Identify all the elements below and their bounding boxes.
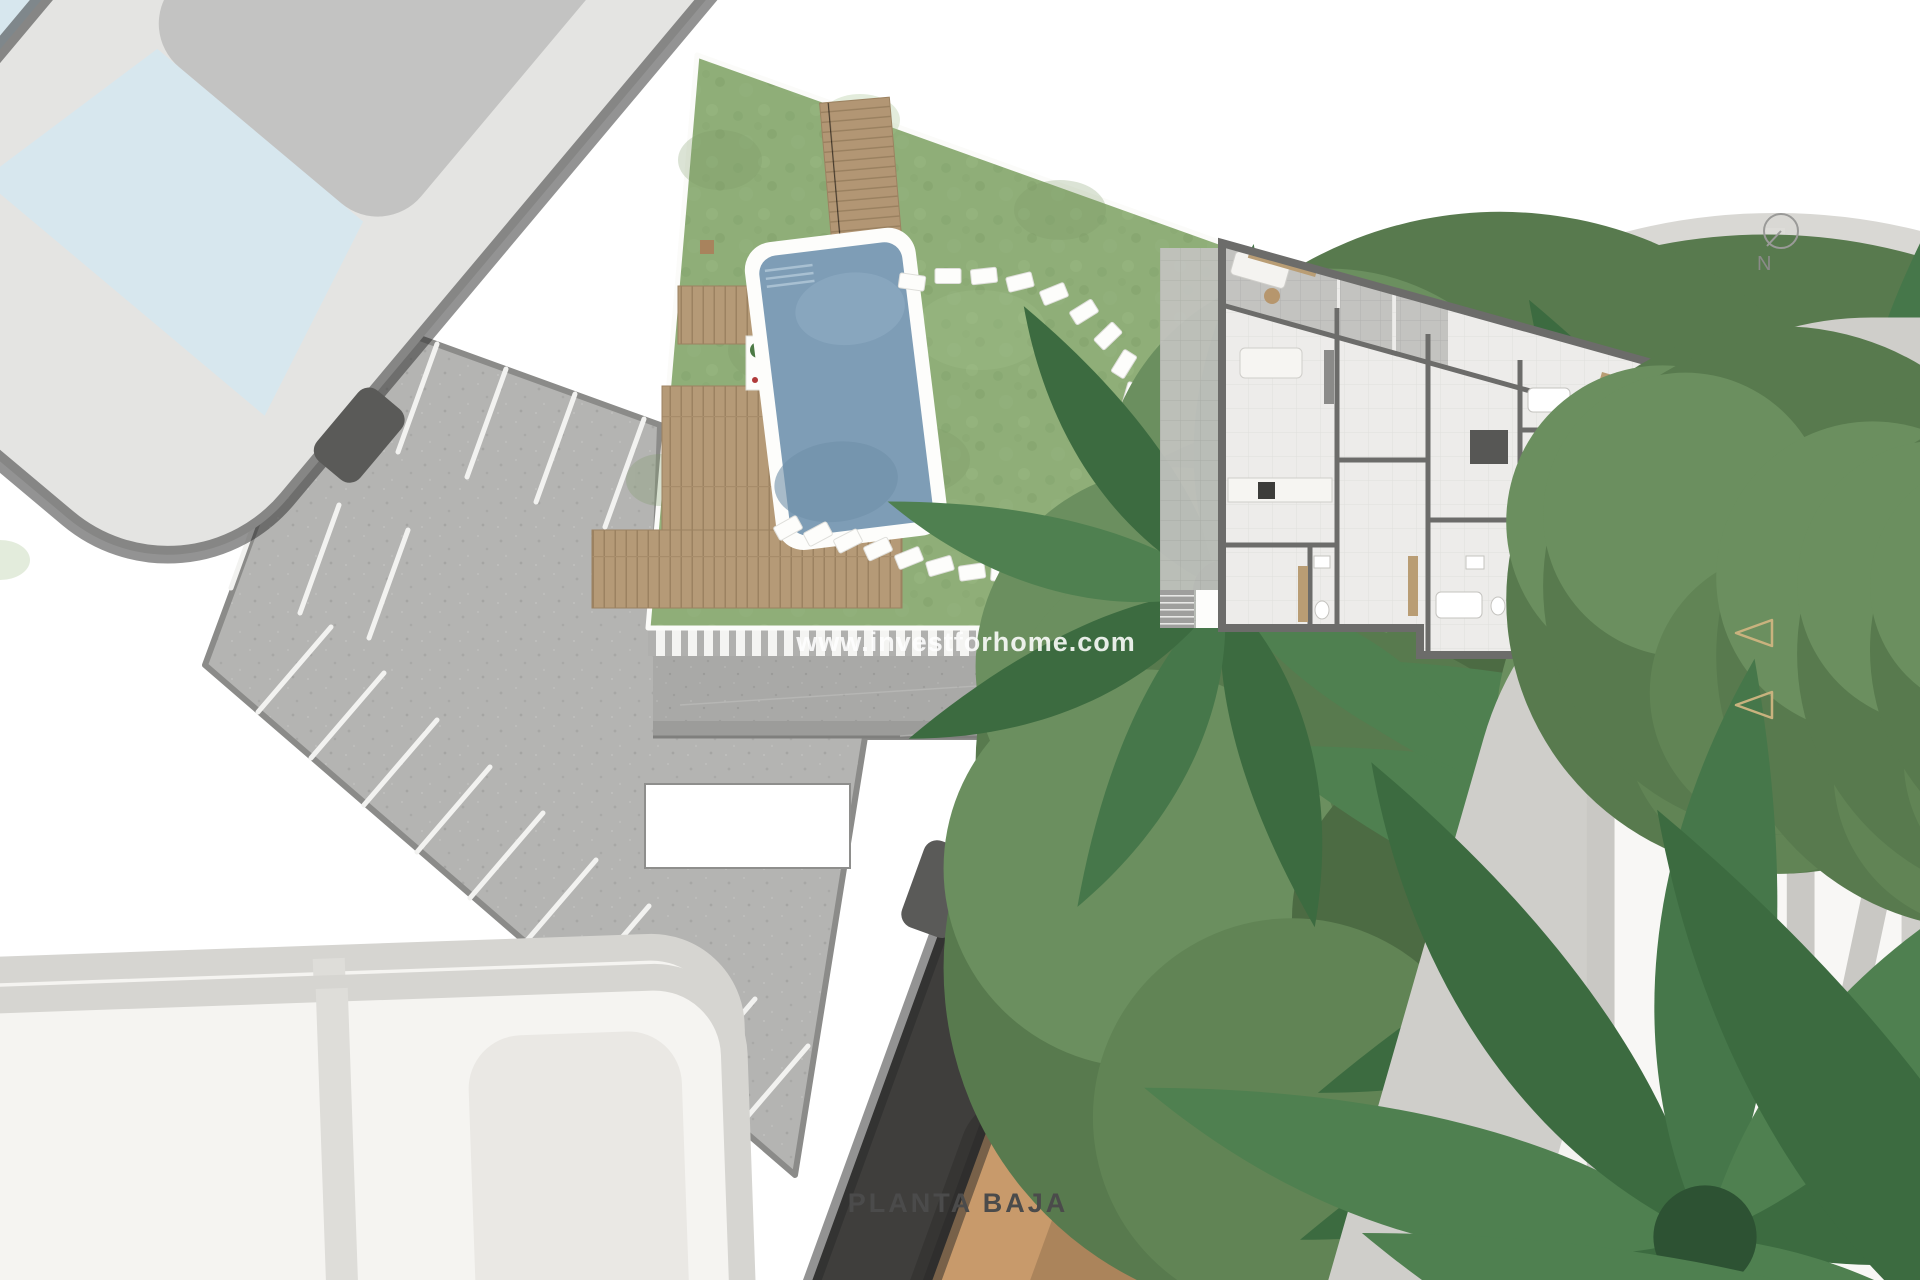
sink [1466, 556, 1484, 569]
side-table [700, 240, 714, 254]
compass-north-label: N [1757, 253, 1771, 275]
toilet [1491, 597, 1505, 615]
tv-sideboard [1324, 350, 1334, 404]
sink [1314, 556, 1330, 568]
site-plan-page: www.investforhome.com N PLANTA BAJA [0, 0, 1920, 1280]
site-plan-drawing: www.investforhome.com N PLANTA BAJA [0, 0, 1920, 1280]
floor-title: PLANTA BAJA [848, 1188, 1069, 1218]
plaza-stairs [1160, 590, 1194, 628]
bathtub [1436, 592, 1482, 618]
garage-entrance-notch [645, 784, 850, 868]
wardrobe [1408, 556, 1418, 616]
kitchen-counter [1228, 478, 1332, 502]
deck-walkway-top [820, 97, 902, 249]
wardrobe [1298, 566, 1308, 622]
sofa [1240, 348, 1302, 378]
elevator-core [1470, 430, 1508, 464]
sun-lounger [0, 974, 748, 1280]
toilet [1315, 601, 1329, 619]
kitchen-range [1258, 482, 1275, 499]
watermark-text: www.investforhome.com [795, 627, 1136, 657]
